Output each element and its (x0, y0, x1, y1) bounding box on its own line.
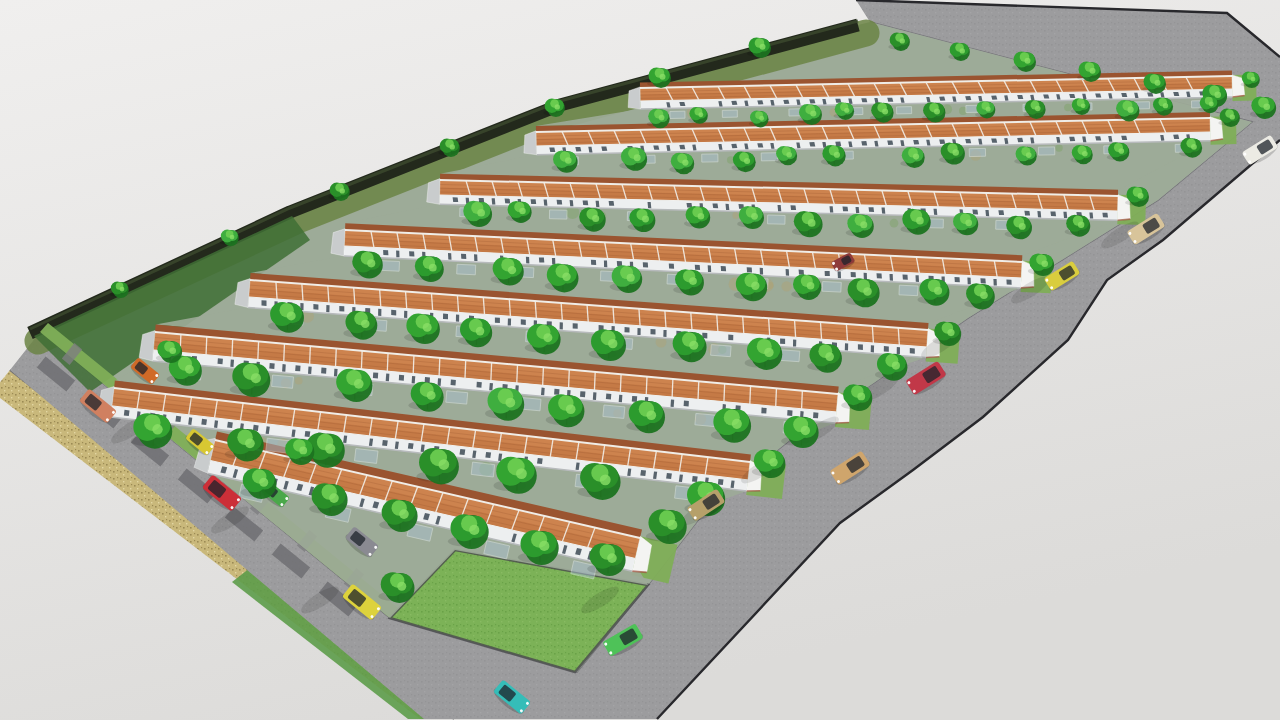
party-wall-line (802, 391, 803, 409)
carport-canopy (272, 375, 294, 388)
carport-canopy (969, 148, 985, 156)
window (295, 365, 300, 371)
tree (1142, 74, 1166, 95)
tree (416, 448, 459, 484)
window (583, 200, 589, 205)
tree (1070, 98, 1090, 115)
gable-end-west (628, 87, 640, 109)
window (1050, 212, 1056, 217)
window (934, 209, 938, 215)
window (443, 314, 448, 320)
canopy-glint (1163, 103, 1168, 108)
window (537, 458, 543, 464)
window (991, 138, 997, 142)
canopy-glint (185, 365, 194, 374)
tree (807, 343, 842, 373)
canopy-glint (325, 443, 335, 453)
gable-end-west (524, 131, 537, 155)
tree (669, 153, 694, 174)
canopy-glint (592, 215, 599, 222)
tree (752, 449, 786, 478)
window (887, 141, 893, 145)
window (408, 443, 414, 449)
canopy-glint (1155, 80, 1161, 86)
canopy-glint (608, 339, 617, 348)
window (604, 260, 607, 267)
canopy-glint (801, 426, 810, 435)
tree (1004, 216, 1032, 239)
canopy-glint (607, 553, 617, 563)
window (890, 274, 894, 281)
window (175, 416, 181, 422)
window (663, 330, 666, 337)
tree (747, 38, 771, 59)
window (1024, 211, 1030, 216)
canopy-glint (340, 188, 345, 193)
window (671, 399, 675, 407)
window (993, 279, 997, 286)
tree (1179, 138, 1202, 158)
window (1102, 213, 1108, 218)
window (456, 315, 459, 322)
tree (628, 208, 656, 232)
tree (241, 468, 277, 499)
window (386, 374, 390, 382)
canopy-glint (505, 398, 515, 408)
canopy-glint (1078, 221, 1084, 227)
canopy-glint (354, 379, 364, 389)
canopy-glint (642, 216, 649, 223)
carport-canopy (355, 449, 379, 464)
window (378, 309, 381, 316)
window (253, 425, 259, 431)
canopy-glint (689, 341, 698, 350)
tree (939, 142, 965, 164)
canopy-glint (399, 509, 409, 519)
carport-canopy (768, 215, 786, 224)
canopy-glint (689, 277, 697, 285)
window (451, 379, 456, 385)
tree (1012, 52, 1036, 73)
window (747, 267, 752, 272)
canopy-glint (565, 157, 572, 164)
carport-canopy (702, 154, 718, 162)
window (760, 268, 763, 275)
window (787, 410, 792, 416)
window (998, 210, 1004, 215)
canopy-glint (844, 108, 849, 113)
party-wall-line (258, 341, 259, 359)
tree (688, 107, 708, 124)
canopy-glint (169, 347, 176, 354)
window (721, 266, 726, 271)
window (448, 253, 452, 260)
window (339, 306, 344, 312)
canopy-glint (1118, 148, 1124, 154)
tree (545, 264, 579, 293)
party-wall-line (698, 381, 699, 399)
canopy-glint (769, 458, 777, 466)
canopy-glint (646, 410, 656, 420)
window (761, 408, 766, 414)
canopy-glint (519, 208, 525, 214)
ground-patch (890, 219, 899, 228)
tree (731, 152, 755, 173)
window (780, 339, 785, 345)
gable-end-east (1210, 117, 1223, 141)
tree (461, 201, 492, 227)
canopy-glint (329, 493, 339, 503)
canopy-glint (516, 468, 527, 479)
window (793, 339, 796, 346)
tree (1077, 62, 1101, 83)
tree (647, 68, 671, 89)
party-wall-line (569, 370, 570, 388)
canopy-glint (152, 424, 162, 434)
window (985, 210, 989, 216)
tree (1014, 146, 1037, 165)
window (884, 346, 889, 352)
tree (506, 201, 532, 223)
canopy-glint (760, 44, 766, 50)
window (897, 347, 900, 354)
tree (220, 230, 239, 246)
window (813, 412, 818, 418)
party-wall-line (232, 339, 233, 357)
tree (791, 274, 821, 300)
tree (404, 314, 440, 344)
tree (922, 102, 946, 122)
party-wall-line (439, 358, 440, 376)
canopy-glint (744, 158, 750, 164)
window (508, 318, 511, 325)
window (619, 395, 623, 403)
tree (110, 282, 129, 298)
canopy-glint (1251, 77, 1256, 82)
window (262, 300, 267, 306)
window (269, 363, 274, 369)
canopy-glint (562, 272, 570, 280)
window (460, 449, 466, 455)
window (713, 204, 719, 209)
canopy-glint (600, 474, 611, 485)
window (651, 329, 656, 335)
party-wall-line (361, 351, 362, 369)
canopy-glint (698, 112, 703, 117)
canopy-glint (469, 525, 479, 535)
window (453, 197, 459, 202)
window (526, 257, 530, 264)
window (425, 377, 430, 383)
party-wall-line (206, 337, 207, 355)
canopy-glint (965, 219, 972, 226)
canopy-glint (634, 154, 641, 161)
carport-canopy (722, 110, 737, 117)
party-wall-line (543, 367, 544, 385)
tree (268, 302, 304, 333)
tree (458, 318, 492, 347)
window (544, 200, 548, 206)
canopy-glint (1191, 144, 1197, 150)
tree (543, 99, 565, 117)
window (861, 141, 867, 145)
window (972, 210, 978, 215)
window (539, 257, 544, 262)
tree (1125, 187, 1149, 208)
canopy-glint (1214, 91, 1221, 98)
window (477, 382, 482, 388)
canopy-glint (751, 213, 758, 220)
tree (951, 212, 978, 235)
tree (821, 145, 846, 166)
canopy-glint (892, 362, 900, 370)
window (1017, 138, 1023, 142)
window (609, 201, 615, 206)
canopy-glint (259, 478, 268, 487)
party-wall-line (724, 384, 725, 402)
window (1063, 212, 1067, 218)
window (851, 272, 856, 277)
canopy-glint (423, 323, 432, 332)
window (778, 205, 782, 211)
tree (932, 321, 961, 346)
gable-end-west (427, 179, 440, 205)
canopy-glint (120, 287, 125, 292)
window (557, 200, 563, 205)
window (910, 348, 915, 354)
tree (975, 101, 995, 118)
window (485, 452, 491, 458)
window (653, 145, 659, 149)
window (637, 328, 640, 335)
tree (409, 382, 444, 412)
canopy-glint (667, 520, 677, 530)
window (606, 394, 611, 400)
window (903, 275, 908, 280)
window (625, 327, 630, 333)
window (438, 378, 442, 386)
canopy-glint (934, 287, 942, 295)
canopy-glint (986, 107, 991, 112)
canopy-glint (980, 291, 988, 299)
tree (546, 394, 585, 427)
window (1037, 211, 1041, 217)
window (560, 322, 563, 329)
canopy-glint (659, 115, 665, 121)
tree (1065, 215, 1091, 237)
window (573, 323, 578, 329)
window (877, 273, 882, 278)
window (409, 251, 414, 256)
window (570, 200, 574, 206)
canopy-glint (947, 329, 954, 336)
window (396, 251, 399, 258)
party-wall-line (672, 379, 673, 397)
party-wall-line (517, 365, 518, 383)
window (1121, 136, 1127, 140)
window (489, 383, 493, 391)
window (864, 273, 867, 280)
canopy-glint (1209, 101, 1214, 106)
window (521, 319, 526, 325)
ground-patch (1055, 144, 1062, 151)
carport-canopy (549, 210, 567, 219)
canopy-glint (539, 541, 549, 551)
tree (745, 338, 783, 370)
tree (792, 211, 823, 237)
canopy-glint (1041, 260, 1048, 267)
window (939, 139, 945, 144)
canopy-glint (566, 404, 576, 414)
tree (737, 206, 764, 229)
tree (1152, 97, 1173, 115)
tree (491, 257, 524, 285)
window (321, 368, 326, 374)
window (201, 419, 207, 425)
window (218, 358, 223, 364)
canopy-glint (751, 282, 759, 290)
tree (775, 146, 797, 165)
canopy-glint (960, 48, 965, 53)
canopy-glint (1035, 106, 1041, 112)
window (666, 473, 672, 479)
window (684, 401, 689, 407)
canopy-glint (508, 266, 516, 274)
canopy-glint (477, 209, 485, 217)
canopy-glint (1019, 223, 1026, 230)
window (391, 310, 396, 316)
window (967, 278, 971, 285)
tree (485, 387, 524, 420)
window (692, 476, 698, 482)
window (1173, 135, 1179, 139)
window (825, 271, 830, 276)
window (728, 335, 733, 341)
window (871, 345, 874, 352)
canopy-glint (429, 264, 437, 272)
canopy-glint (807, 282, 815, 290)
window (382, 440, 388, 446)
tree (334, 369, 373, 402)
tree (684, 206, 710, 228)
canopy-glint (555, 104, 560, 109)
tree (413, 256, 444, 282)
tree (846, 214, 874, 238)
window (708, 265, 712, 272)
window (596, 201, 600, 207)
tree (619, 147, 647, 171)
ground-patch (781, 281, 791, 291)
window (373, 372, 378, 378)
window (726, 204, 730, 210)
tree (494, 457, 537, 494)
window (809, 142, 815, 147)
window (843, 207, 849, 212)
tree (1023, 100, 1045, 119)
carport-canopy (1038, 147, 1054, 155)
tree (673, 269, 704, 295)
tree (525, 324, 561, 355)
party-wall-line (620, 374, 621, 392)
window (669, 264, 674, 269)
tree (589, 329, 626, 361)
carport-canopy (381, 261, 400, 272)
tree (577, 208, 605, 232)
canopy-glint (251, 373, 261, 383)
canopy-glint (1090, 68, 1096, 74)
tree (350, 251, 383, 279)
window (1095, 136, 1101, 140)
window (326, 305, 329, 312)
tree (1107, 142, 1130, 161)
tree (448, 514, 489, 549)
window (695, 265, 700, 270)
window (549, 148, 555, 153)
window (718, 479, 724, 485)
canopy-glint (627, 274, 635, 282)
canopy-glint (450, 144, 455, 149)
window (505, 199, 511, 204)
window (383, 250, 388, 255)
window (492, 198, 496, 204)
window (799, 270, 804, 275)
window (791, 205, 797, 210)
tree (1070, 145, 1092, 164)
canopy-glint (934, 108, 940, 114)
party-wall-line (594, 372, 595, 390)
carport-canopy (897, 107, 912, 114)
tree (870, 102, 894, 122)
tree (917, 278, 949, 305)
window (495, 317, 500, 323)
window (601, 147, 607, 151)
window (830, 206, 834, 212)
tree (749, 111, 769, 128)
tree (626, 400, 665, 433)
render-viewport (0, 0, 1280, 720)
canopy-glint (1081, 103, 1086, 108)
window (305, 431, 311, 437)
window (835, 142, 841, 146)
party-wall-line (750, 386, 751, 404)
canopy-glint (834, 152, 840, 158)
window (869, 207, 875, 212)
canopy-glint (732, 419, 742, 429)
canopy-glint (808, 219, 816, 227)
window (648, 202, 652, 208)
tree (283, 438, 314, 465)
tree (1198, 96, 1218, 113)
window (308, 367, 312, 375)
canopy-glint (698, 213, 705, 220)
window (731, 144, 737, 148)
carport-canopy (779, 350, 800, 362)
party-wall-line (465, 360, 466, 378)
carport-canopy (446, 391, 468, 404)
carport-canopy (471, 462, 495, 477)
tree (900, 147, 924, 168)
window (679, 145, 685, 150)
tree (797, 104, 821, 125)
carport-canopy (670, 111, 685, 118)
canopy-glint (1127, 107, 1133, 113)
party-wall-line (310, 346, 311, 364)
tree (156, 340, 182, 363)
window (230, 359, 234, 367)
canopy-glint (1263, 103, 1270, 110)
canopy-glint (299, 447, 307, 455)
window (313, 304, 318, 310)
